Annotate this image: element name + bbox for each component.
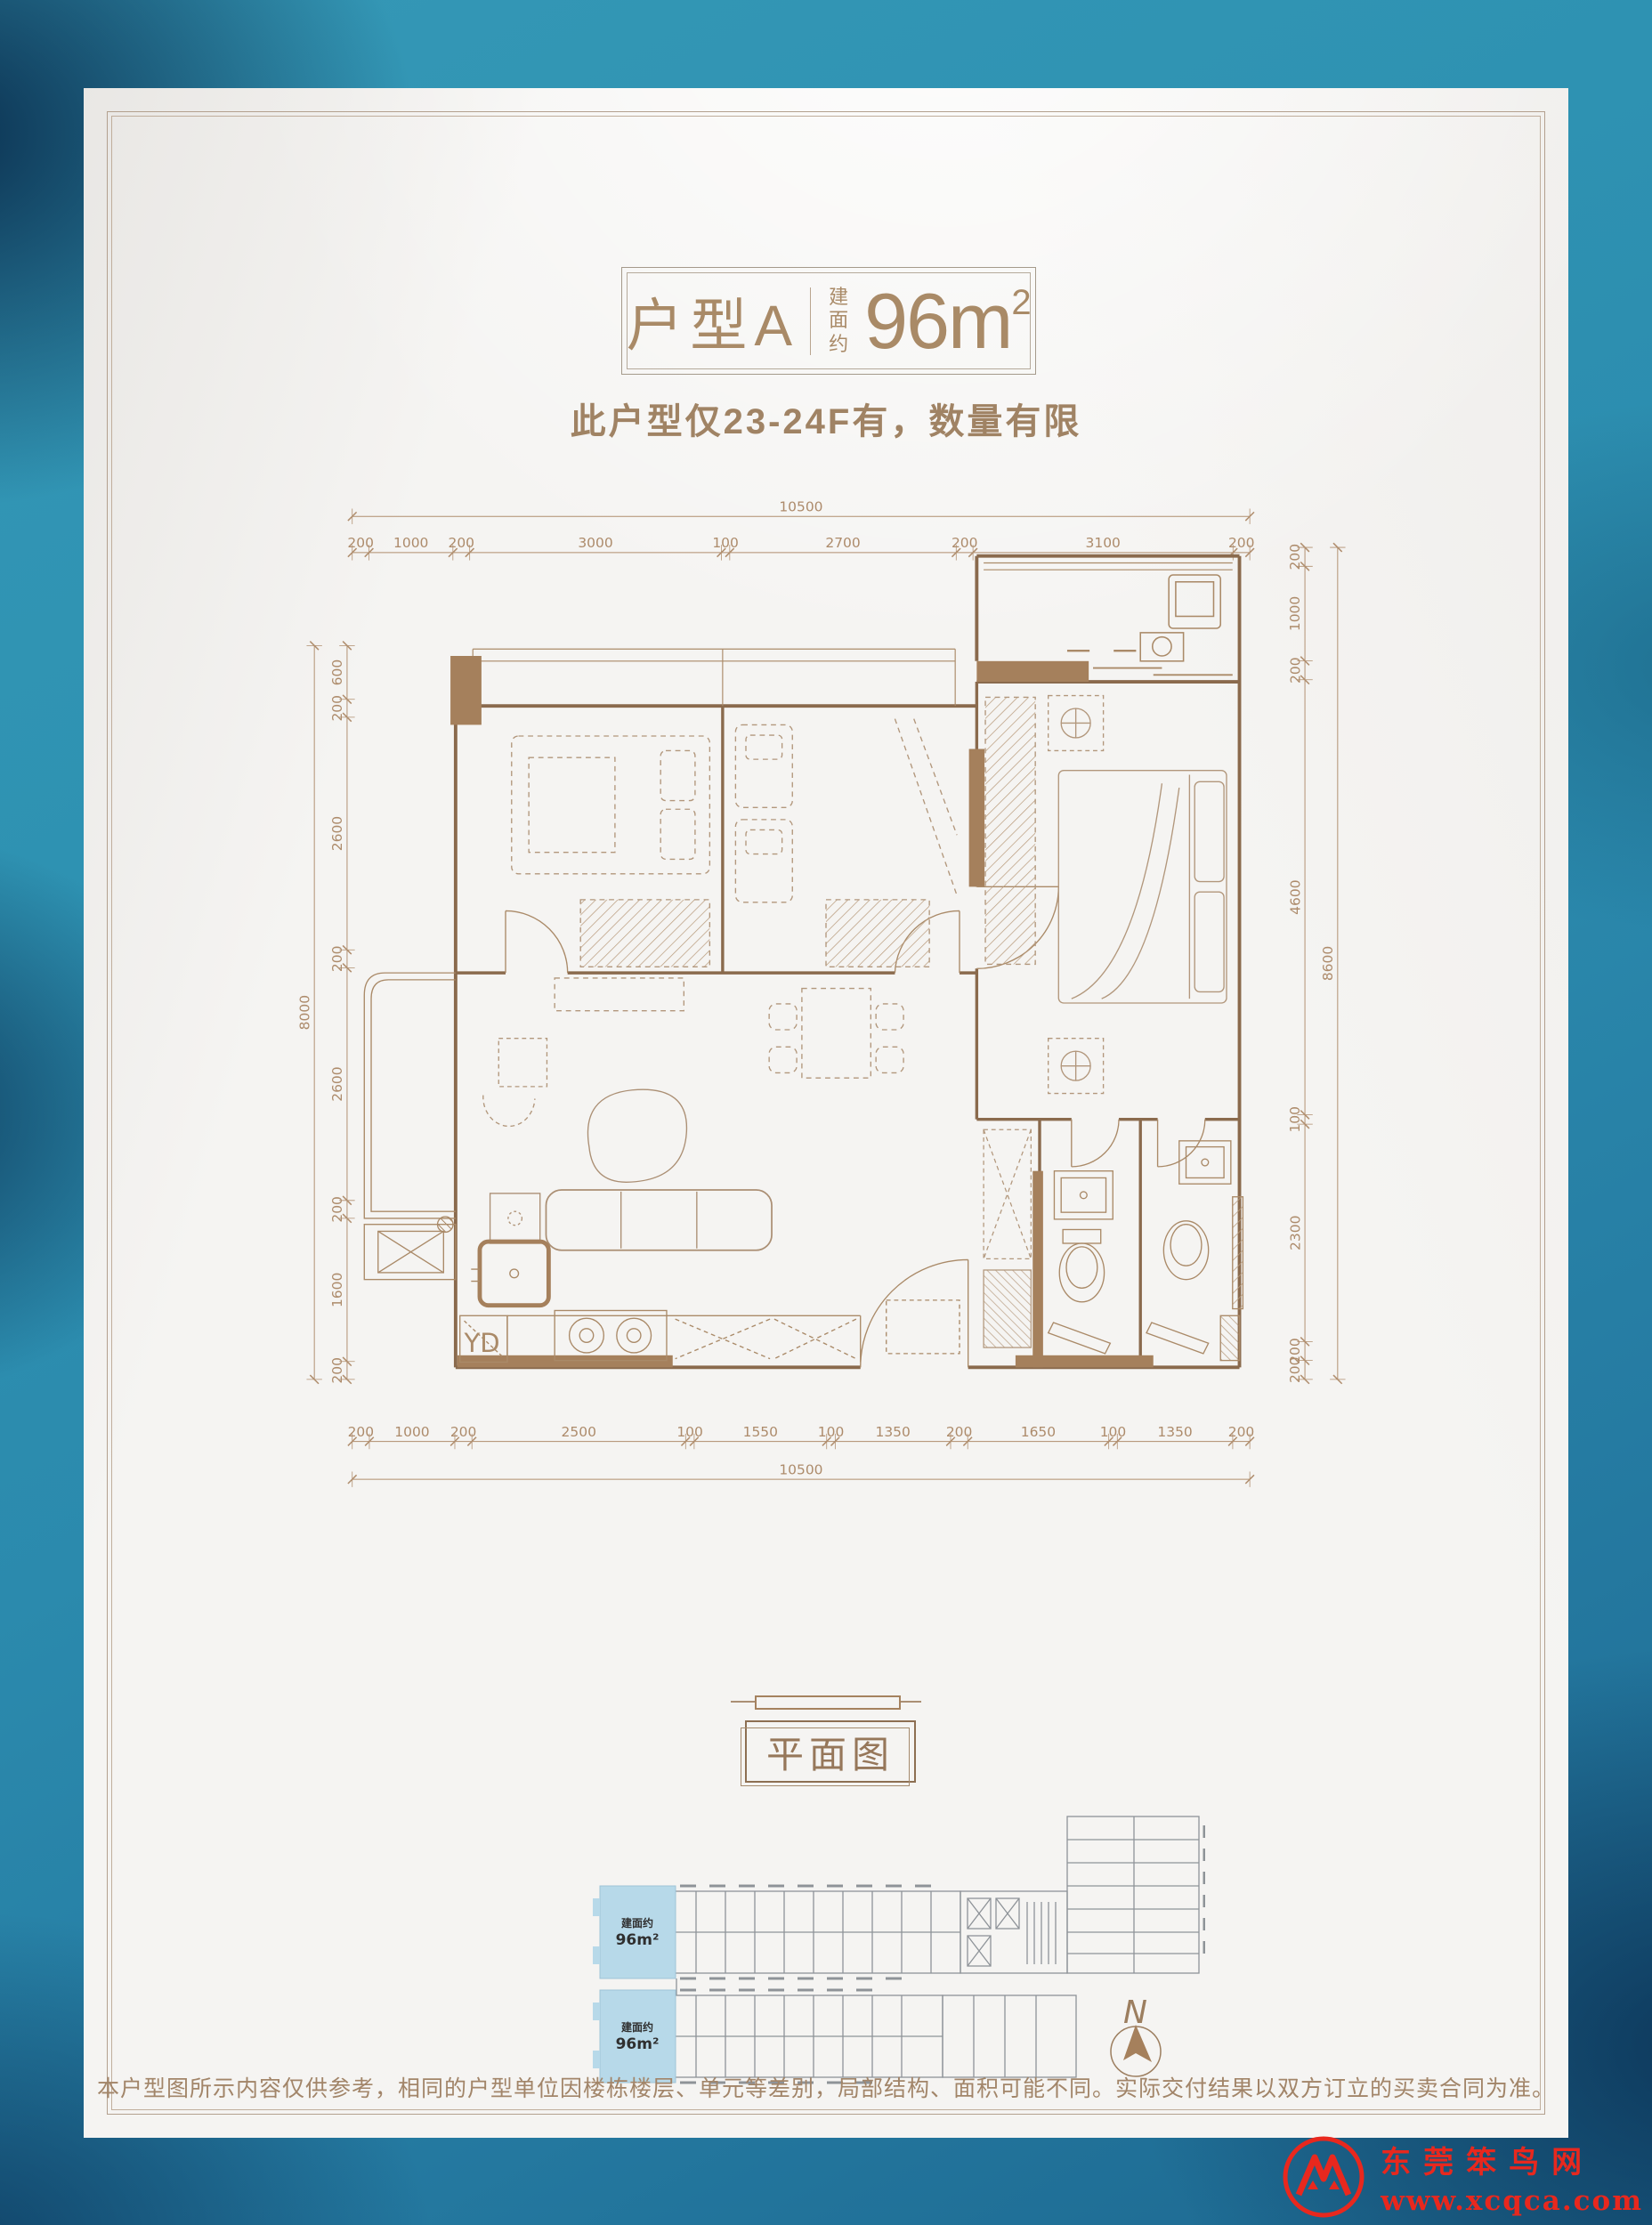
svg-text:100: 100 [818, 1424, 845, 1440]
svg-text:200: 200 [329, 1196, 345, 1223]
ac-platform [364, 1225, 456, 1280]
bedroom1-furniture [512, 736, 710, 967]
highlighted-unit-upper: 建面约 96m² [593, 1886, 676, 1978]
svg-text:200: 200 [450, 1424, 477, 1440]
svg-text:200: 200 [1228, 1424, 1255, 1440]
key-plan-building [667, 1816, 1204, 2083]
svg-text:200: 200 [348, 1424, 375, 1440]
svg-text:3000: 3000 [578, 535, 612, 551]
window-band-top [473, 562, 1233, 706]
section-label-box: 平面图 [745, 1720, 916, 1783]
section-label: 平面图 [766, 1725, 895, 1779]
highlighted-unit-lower: 建面约 96m² [593, 1990, 676, 2083]
svg-text:200: 200 [329, 946, 345, 973]
unit-label-prefix: 建面约 [620, 1916, 653, 1930]
poster-card: 户型A 建面约 96m2 此户型仅23-24F有，数量有限 1050020010… [84, 88, 1568, 2138]
svg-text:200: 200 [952, 535, 978, 551]
hall-closet [984, 1129, 1031, 1347]
kitchen [460, 1242, 960, 1362]
bathroom1 [1049, 1171, 1113, 1354]
unit-label-area: 96m² [616, 1931, 660, 1949]
svg-text:200: 200 [946, 1424, 973, 1440]
bathroom2 [1146, 1141, 1243, 1361]
svg-text:8000: 8000 [296, 995, 312, 1030]
svg-text:100: 100 [1287, 1106, 1303, 1133]
flue-label: YD [464, 1328, 500, 1358]
svg-text:1650: 1650 [1021, 1424, 1056, 1440]
title-box: 户型A 建面约 96m2 [621, 267, 1036, 375]
svg-text:200: 200 [329, 1357, 345, 1384]
svg-text:600: 600 [329, 659, 345, 686]
svg-text:10500: 10500 [779, 498, 822, 514]
structural-columns [450, 656, 1154, 1367]
svg-text:100: 100 [712, 535, 739, 551]
svg-text:3100: 3100 [1086, 535, 1121, 551]
poster-background: { "poster": { "title": { "unit_label": "… [0, 0, 1652, 2225]
svg-text:1000: 1000 [1287, 596, 1303, 631]
north-compass-icon: N [1111, 1994, 1161, 2076]
balcony-laundry [1067, 575, 1220, 661]
svg-text:200: 200 [329, 695, 345, 722]
svg-text:2300: 2300 [1287, 1216, 1303, 1250]
area-value: 96m2 [864, 282, 1031, 360]
watermark-logo-icon [1281, 2134, 1366, 2220]
svg-text:1000: 1000 [394, 1424, 429, 1440]
svg-text:2600: 2600 [329, 816, 345, 851]
living-bay-window [364, 973, 456, 1232]
living-dining-furniture [483, 978, 903, 1250]
svg-text:200: 200 [1287, 1357, 1303, 1384]
unit-label-area: 96m² [616, 2035, 660, 2053]
floor-plan: 1050020010002003000100270020031002002001… [292, 490, 1360, 1516]
svg-text:1000: 1000 [393, 535, 428, 551]
unit-label-prefix: 建面约 [620, 2020, 653, 2034]
svg-text:2600: 2600 [329, 1066, 345, 1101]
svg-text:1350: 1350 [875, 1424, 910, 1440]
watermark-site-url: www.xcqca.com [1381, 2185, 1643, 2217]
svg-text:200: 200 [448, 535, 474, 551]
unit-type-label: 户型A [626, 280, 799, 362]
svg-text:1550: 1550 [743, 1424, 778, 1440]
floor-plan-svg: 1050020010002003000100270020031002002001… [292, 490, 1360, 1516]
svg-text:8600: 8600 [1320, 946, 1336, 981]
master-bedroom-furniture [985, 696, 1227, 1094]
svg-text:200: 200 [1228, 535, 1255, 551]
svg-text:100: 100 [1100, 1424, 1127, 1440]
section-divider-ornament [731, 1695, 921, 1708]
availability-subtitle: 此户型仅23-24F有，数量有限 [84, 392, 1568, 444]
area-superscript: 2 [1011, 283, 1031, 322]
svg-text:1600: 1600 [329, 1273, 345, 1307]
disclaimer-text: 本户型图所示内容仅供参考，相同的户型单位因楼栋楼层、单元等差别，局部结构、面积可… [84, 2071, 1568, 2103]
key-plan-svg: 建面约 96m² 建面约 96m² N [582, 1813, 1205, 2091]
interior-walls [456, 682, 1240, 1367]
svg-text:2700: 2700 [825, 535, 860, 551]
svg-text:1350: 1350 [1157, 1424, 1192, 1440]
svg-text:200: 200 [347, 535, 374, 551]
title-divider [810, 287, 811, 355]
ornament-bar [755, 1695, 901, 1710]
watermark: 东莞笨鸟网 www.xcqca.com [1281, 2134, 1643, 2220]
svg-text:200: 200 [1287, 544, 1303, 570]
bedroom2-furniture [735, 719, 957, 967]
svg-text:4600: 4600 [1287, 879, 1303, 914]
watermark-site-name: 东莞笨鸟网 [1381, 2138, 1643, 2181]
svg-text:2500: 2500 [562, 1424, 596, 1440]
svg-text:10500: 10500 [779, 1461, 822, 1477]
area-prefix-label: 建面约 [829, 286, 852, 356]
svg-text:100: 100 [676, 1424, 703, 1440]
svg-text:200: 200 [1287, 657, 1303, 684]
north-label: N [1123, 1994, 1147, 2031]
key-plan: 建面约 96m² 建面约 96m² N [582, 1813, 1205, 2091]
sliding-door [1093, 668, 1233, 676]
